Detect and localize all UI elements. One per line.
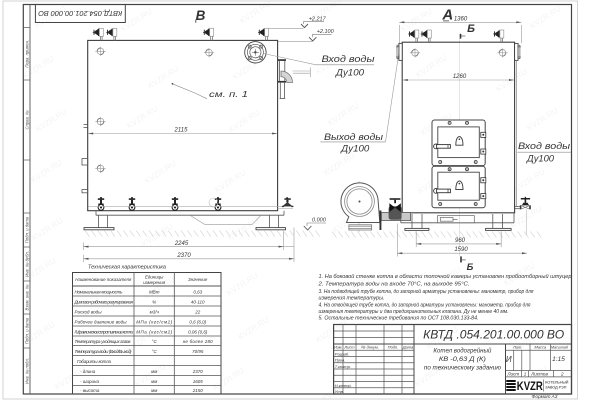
- svg-text:№ докум.: № докум.: [361, 345, 379, 350]
- svg-text:по техническому заданию: по техническому заданию: [424, 363, 501, 371]
- svg-text:Расход воды: Расход воды: [75, 310, 103, 315]
- svg-text:70/95: 70/95: [192, 349, 204, 354]
- svg-text:Дата: Дата: [402, 345, 414, 350]
- svg-text:И: И: [506, 355, 512, 364]
- svg-text:Взам. инв. №: Взам. инв. №: [25, 284, 30, 310]
- svg-text:Температура уходящих газов: Температура уходящих газов: [75, 339, 132, 344]
- svg-text:Справ. №: Справ. №: [25, 110, 30, 129]
- svg-text:5. Остальные технические треб: 5. Остальные технические требования по О…: [319, 315, 479, 321]
- svg-text:Б: Б: [467, 262, 474, 273]
- svg-text:Пров.: Пров.: [335, 358, 346, 363]
- svg-text:- ширина: - ширина: [80, 379, 99, 384]
- svg-text:Температура воды (Вход/Выход): Температура воды (Вход/Выход): [75, 349, 133, 354]
- svg-text:Подп. и дата: Подп. и дата: [25, 216, 30, 243]
- svg-text:2. Температура воды на входе: 2. Температура воды на входе 70°С, на вы…: [317, 282, 469, 288]
- svg-text:КОТЕЛЬНЫЙ: КОТЕЛЬНЫЙ: [545, 381, 568, 385]
- svg-text:Подп. и дата: Подп. и дата: [25, 317, 30, 344]
- svg-text:Перв. примен.: Перв. примен.: [25, 40, 30, 68]
- svg-text:0.000: 0.000: [312, 217, 327, 223]
- svg-text:- высота: - высота: [80, 388, 100, 393]
- svg-text:измерения температуры и два пр: измерения температуры и два предохраните…: [319, 309, 509, 315]
- svg-text:Гидравлическое сопротивление к: Гидравлическое сопротивление котла: [75, 330, 134, 335]
- svg-text:Масса: Масса: [534, 345, 547, 350]
- svg-text:мм: мм: [151, 388, 157, 393]
- svg-text:КВТД.054.201.00.000 ВО: КВТД.054.201.00.000 ВО: [38, 9, 122, 18]
- svg-text:1:15: 1:15: [552, 356, 565, 363]
- svg-text:KVZR: KVZR: [517, 381, 544, 393]
- svg-text:Формат: Формат: [532, 394, 551, 400]
- svg-text:Б: Б: [467, 23, 475, 35]
- svg-text:Техническая характеристика: Техническая характеристика: [88, 264, 166, 270]
- svg-text:40-110: 40-110: [191, 300, 205, 305]
- svg-text:Листов: Листов: [530, 371, 548, 376]
- svg-text:мм: мм: [151, 369, 157, 374]
- svg-text:Рабочее давление воды: Рабочее давление воды: [75, 320, 128, 325]
- svg-text:Инв. № подл.: Инв. № подл.: [25, 358, 30, 384]
- svg-text:2370: 2370: [176, 253, 191, 259]
- svg-text:Диапазон рабочего регулировани: Диапазон рабочего регулирования: [74, 300, 134, 305]
- svg-text:Ду100: Ду100: [335, 68, 364, 78]
- svg-text:Единицы: Единицы: [145, 275, 164, 280]
- svg-text:Инв. № дубл.: Инв. № дубл.: [25, 251, 30, 277]
- svg-text:2150: 2150: [192, 388, 204, 393]
- svg-text:0,63: 0,63: [193, 290, 202, 295]
- svg-text:МПа (кгс/см2): МПа (кгс/см2): [136, 330, 173, 335]
- svg-text:2: 2: [560, 371, 564, 376]
- svg-text:4. На отводящей трубе котла,: 4. На отводящей трубе котла, до запорной…: [319, 301, 531, 308]
- svg-text:Лит.: Лит.: [512, 345, 522, 350]
- svg-text:Разраб.: Разраб.: [335, 351, 349, 356]
- svg-text:Вход воды: Вход воды: [322, 54, 375, 64]
- svg-text:Изм.: Изм.: [334, 345, 343, 350]
- svg-text:22: 22: [194, 310, 201, 315]
- svg-text:Выход воды: Выход воды: [324, 132, 383, 142]
- svg-text:Значение: Значение: [188, 277, 208, 282]
- svg-text:Номинальная мощность: Номинальная мощность: [75, 290, 124, 295]
- svg-text:Н.контр.: Н.контр.: [335, 383, 352, 388]
- svg-text:Т.контр.: Т.контр.: [335, 364, 351, 369]
- svg-text:В: В: [196, 8, 206, 23]
- svg-text:Ду100: Ду100: [526, 153, 554, 163]
- svg-text:°С: °С: [152, 349, 158, 354]
- svg-text:ЗАВОД РЭП: ЗАВОД РЭП: [545, 385, 566, 389]
- svg-text:960: 960: [455, 238, 466, 244]
- svg-text:°С: °С: [152, 339, 158, 344]
- svg-text:измерения: измерения: [143, 280, 166, 285]
- svg-text:измерения температуры.: измерения температуры.: [319, 295, 385, 301]
- svg-text:- длина: - длина: [80, 369, 96, 374]
- svg-text:см. п. 1: см. п. 1: [209, 89, 248, 99]
- svg-text:Масштаб: Масштаб: [551, 345, 569, 350]
- svg-text:м3/ч: м3/ч: [150, 310, 160, 315]
- svg-text:МВт: МВт: [149, 290, 160, 295]
- svg-text:1605: 1605: [193, 379, 204, 384]
- svg-text:1360: 1360: [454, 17, 468, 23]
- svg-text:Наименование показателя: Наименование показателя: [75, 277, 132, 282]
- svg-text:3. На подводящей трубе котла,: 3. На подводящей трубе котла, до запорно…: [319, 288, 534, 295]
- svg-text:КВТД .054.201.00.000 ВО: КВТД .054.201.00.000 ВО: [423, 328, 564, 342]
- svg-text:Габариты котла: Габариты котла: [77, 359, 111, 364]
- svg-text:мм: мм: [151, 379, 157, 384]
- svg-text:1260: 1260: [453, 74, 467, 80]
- svg-text:Котел водогрейный: Котел водогрейный: [433, 346, 491, 354]
- svg-text:0,06 (0,6): 0,06 (0,6): [188, 330, 208, 335]
- svg-text:Подп.: Подп.: [388, 345, 399, 350]
- svg-text:Вход воды: Вход воды: [518, 141, 570, 151]
- svg-text:Утв.: Утв.: [335, 389, 344, 394]
- svg-text:0,6 (6,0): 0,6 (6,0): [189, 320, 206, 325]
- svg-text:МПа (кгс/см2): МПа (кгс/см2): [136, 320, 173, 325]
- svg-text:1590: 1590: [454, 247, 468, 253]
- svg-text:2245: 2245: [174, 241, 189, 247]
- svg-text:1: 1: [524, 371, 527, 376]
- svg-text:2370: 2370: [192, 369, 204, 374]
- svg-text:КВ -0,63 Д (К): КВ -0,63 Д (К): [439, 356, 486, 363]
- svg-text:А3: А3: [551, 394, 558, 400]
- svg-text:не более 280: не более 280: [183, 339, 213, 344]
- svg-text:Лист: Лист: [343, 345, 355, 350]
- svg-text:1. На боковой стенке котла в: 1. На боковой стенке котла в области топ…: [319, 273, 572, 280]
- svg-text:%: %: [152, 300, 156, 305]
- svg-text:Ду100: Ду100: [340, 144, 369, 154]
- svg-text:2115: 2115: [174, 127, 189, 133]
- svg-text:Лист: Лист: [506, 371, 519, 376]
